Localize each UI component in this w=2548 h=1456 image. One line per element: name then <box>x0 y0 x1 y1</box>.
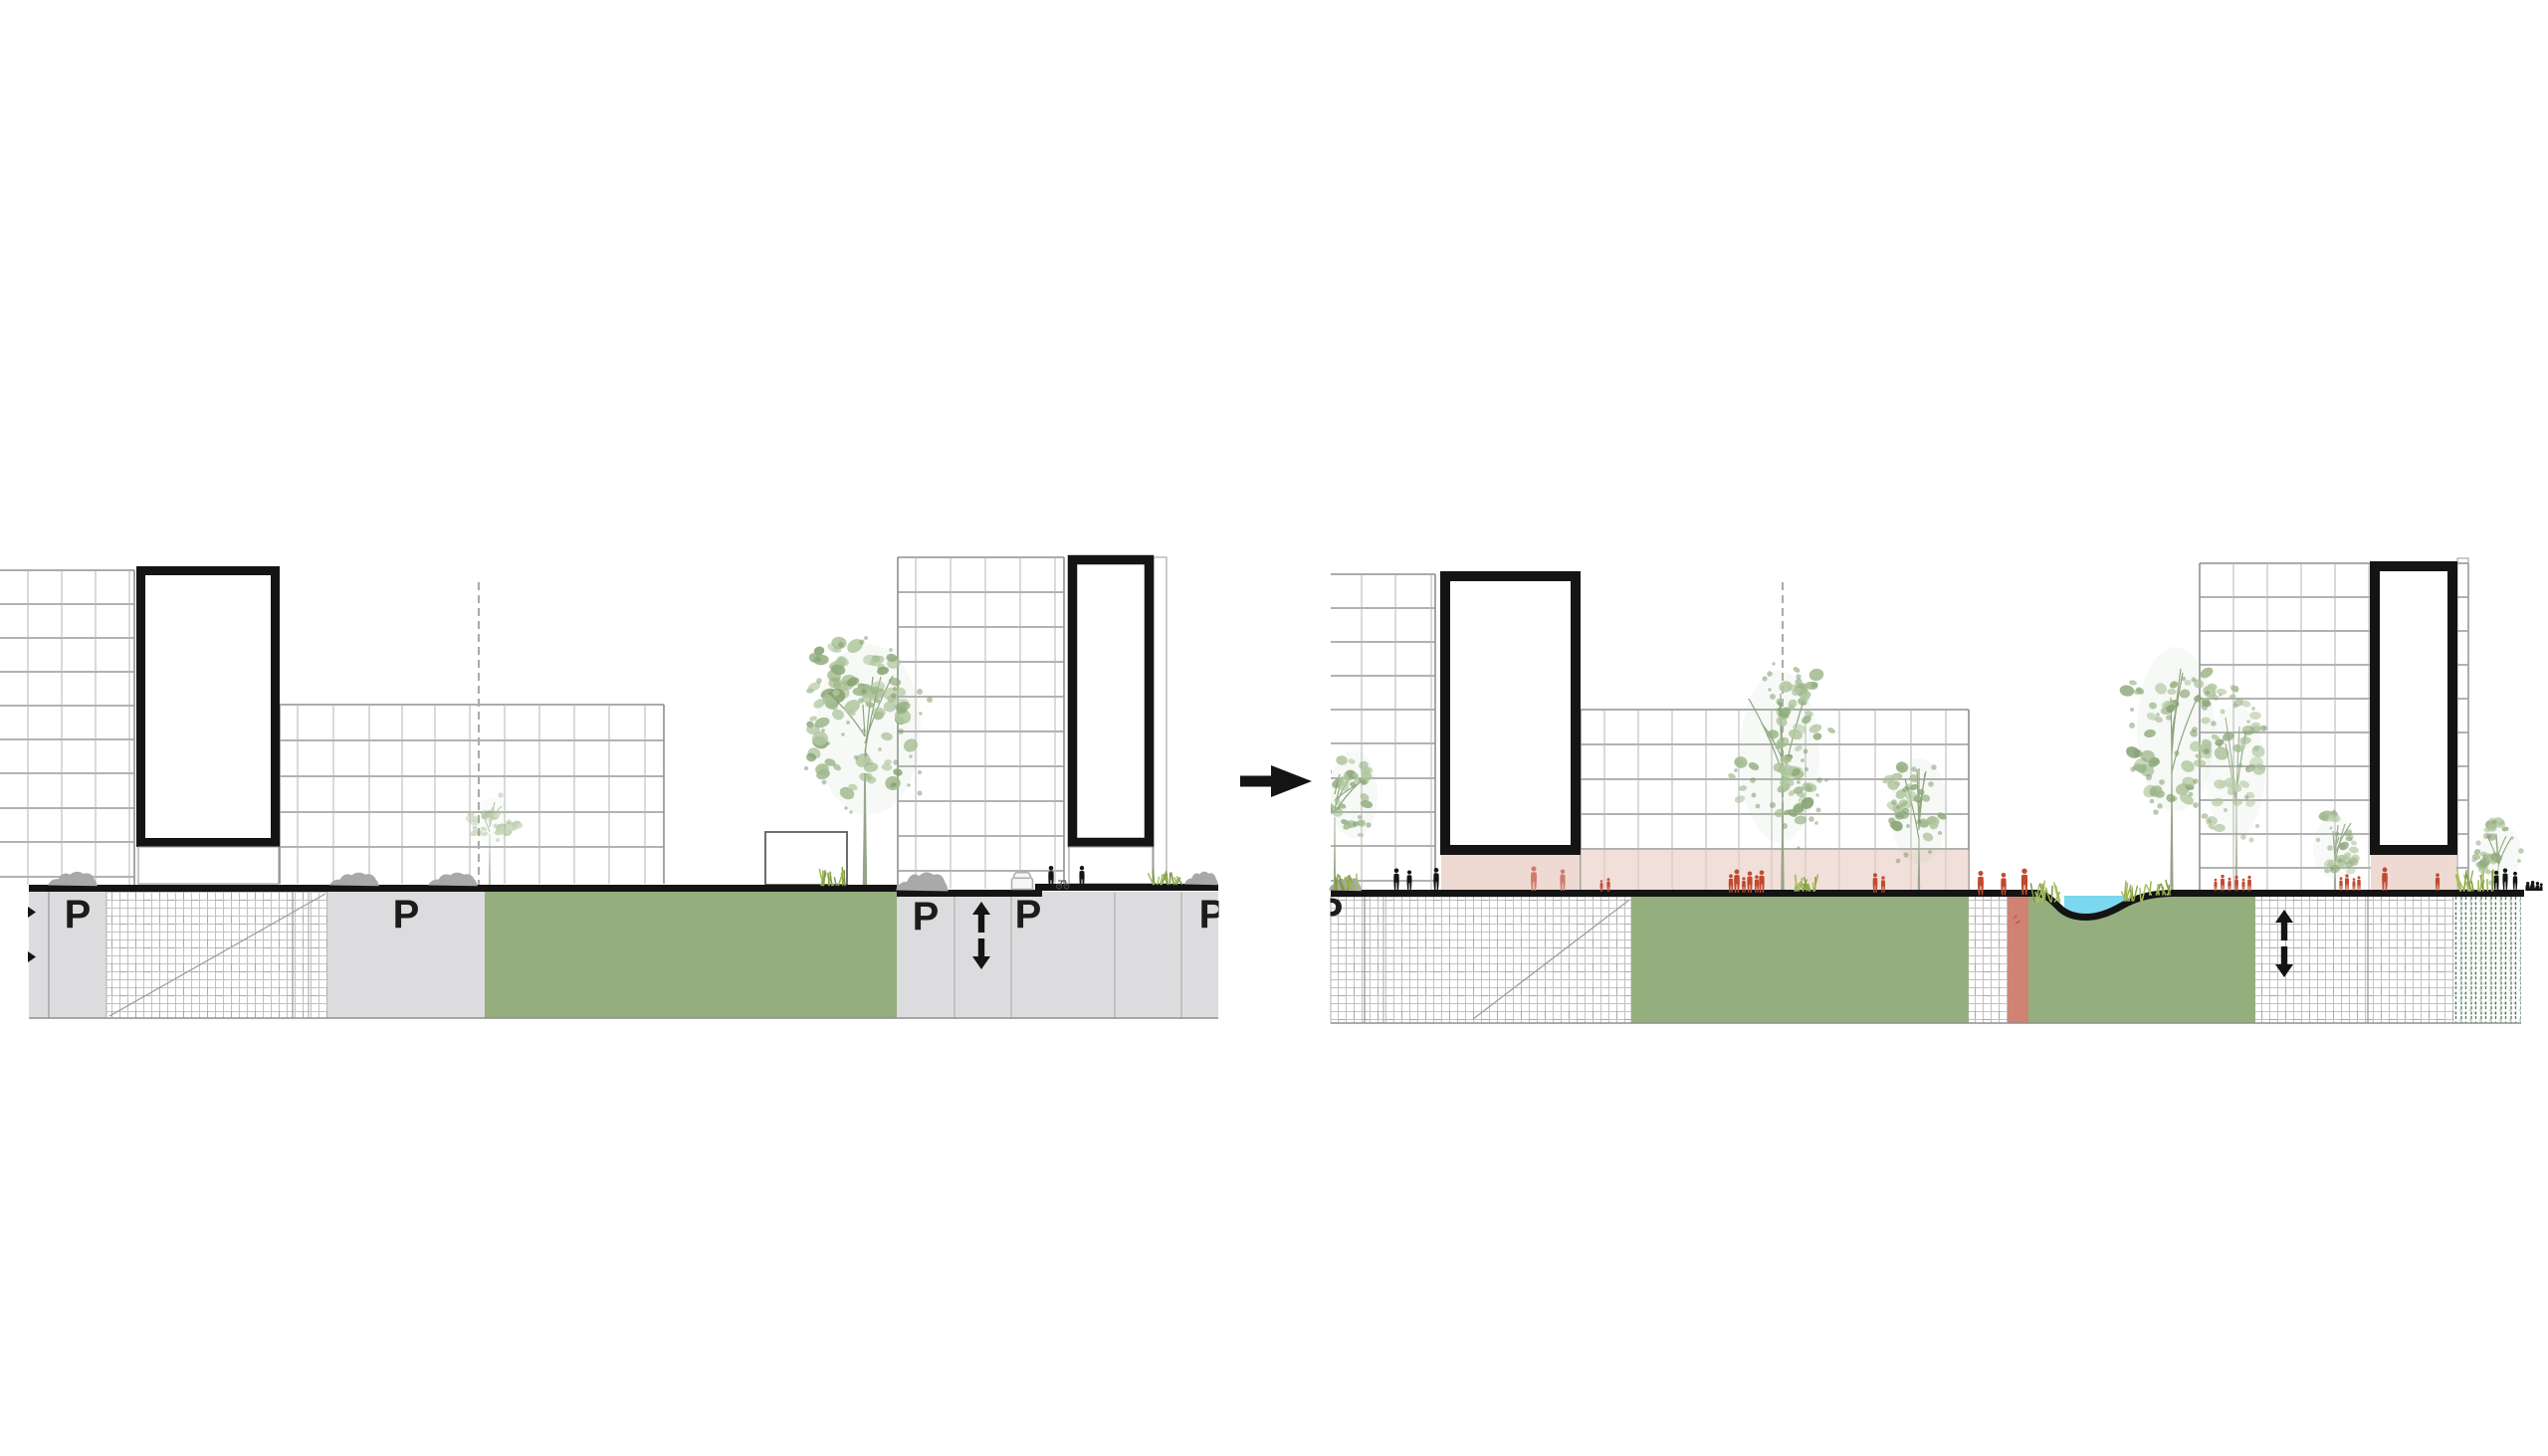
svg-text:P: P <box>913 895 940 938</box>
svg-text:P: P <box>1015 893 1042 936</box>
svg-text:P: P <box>65 893 92 936</box>
svg-text:P: P <box>393 893 420 936</box>
